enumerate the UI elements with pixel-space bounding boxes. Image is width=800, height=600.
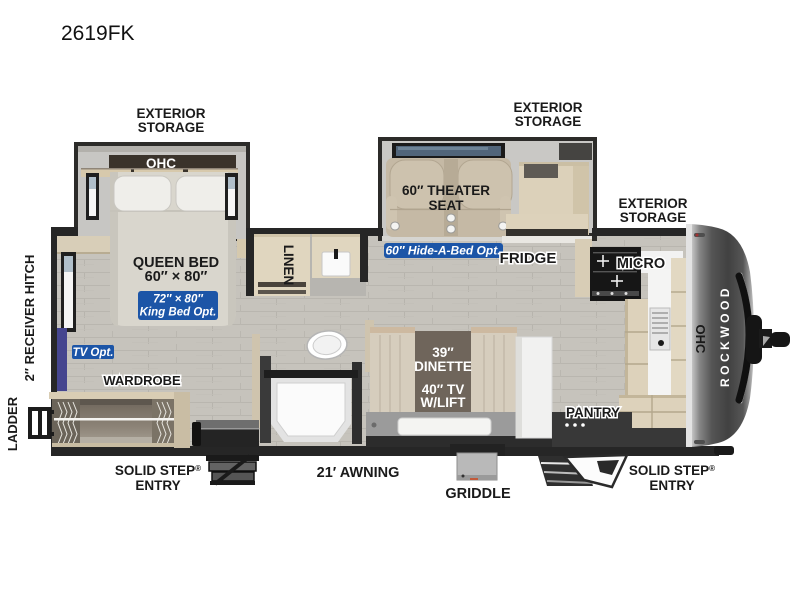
svg-text:LINEN: LINEN — [281, 245, 296, 286]
svg-text:72″ × 80″: 72″ × 80″ — [153, 294, 203, 306]
svg-text:W/LIFT: W/LIFT — [421, 395, 467, 410]
svg-text:60″ × 80″: 60″ × 80″ — [145, 269, 208, 285]
svg-text:LADDER: LADDER — [5, 396, 20, 451]
svg-text:60″ Hide-A-Bed Opt.: 60″ Hide-A-Bed Opt. — [385, 244, 500, 258]
svg-text:2619FK: 2619FK — [61, 22, 135, 45]
svg-text:SOLID STEP®: SOLID STEP® — [629, 463, 715, 478]
svg-text:ENTRY: ENTRY — [135, 478, 180, 493]
svg-text:39″: 39″ — [432, 345, 454, 360]
svg-text:2″ RECEIVER HITCH: 2″ RECEIVER HITCH — [22, 255, 37, 382]
svg-text:EXTERIOR: EXTERIOR — [618, 196, 687, 211]
svg-text:21′ AWNING: 21′ AWNING — [317, 465, 400, 481]
svg-text:DINETTE: DINETTE — [414, 359, 472, 374]
svg-text:STORAGE: STORAGE — [620, 210, 687, 225]
svg-text:OHC: OHC — [146, 156, 176, 171]
svg-text:PANTRY: PANTRY — [566, 405, 620, 420]
svg-text:OHC: OHC — [693, 325, 708, 355]
svg-text:STORAGE: STORAGE — [138, 120, 205, 135]
svg-text:ENTRY: ENTRY — [649, 478, 694, 493]
svg-text:SEAT: SEAT — [428, 198, 464, 213]
svg-text:60″ THEATER: 60″ THEATER — [402, 183, 490, 198]
svg-text:EXTERIOR: EXTERIOR — [136, 106, 205, 121]
svg-text:WARDROBE: WARDROBE — [103, 373, 181, 388]
svg-text:FRIDGE: FRIDGE — [500, 250, 557, 267]
svg-text:King Bed Opt.: King Bed Opt. — [140, 307, 217, 319]
svg-text:ROCKWOOD: ROCKWOOD — [718, 285, 732, 387]
svg-text:STORAGE: STORAGE — [515, 114, 582, 129]
svg-text:SOLID STEP®: SOLID STEP® — [115, 463, 201, 478]
svg-text:EXTERIOR: EXTERIOR — [513, 100, 582, 115]
svg-text:GRIDDLE: GRIDDLE — [445, 486, 511, 502]
svg-text:TV Opt.: TV Opt. — [73, 347, 114, 359]
